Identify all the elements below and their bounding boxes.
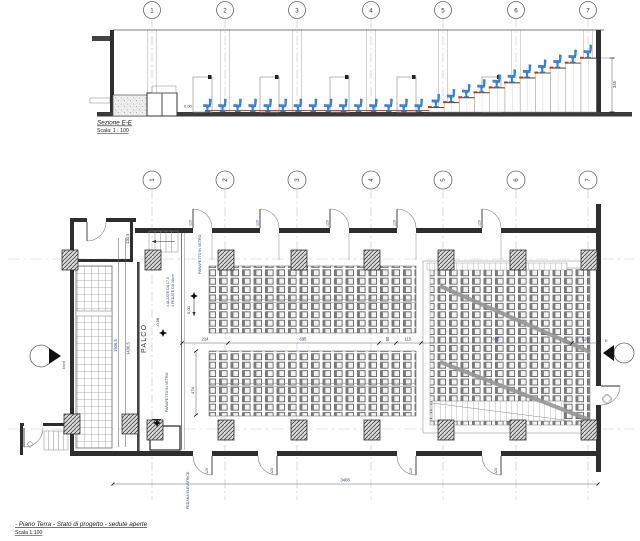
grid-bubble-number: 5 — [441, 7, 445, 14]
section-view: 0.00 345 1234567 Sezione E-E Scala: 1 : … — [90, 2, 632, 135]
plan-grid-bubbles: 1234567 — [143, 171, 597, 189]
stage-label: PALCO — [141, 324, 148, 353]
plan-right-wall-stub-top — [596, 204, 601, 228]
note-parapet-top: PARAPETTO IN VETRO — [198, 234, 202, 274]
door-width-label: 120 — [393, 220, 397, 226]
grid-bubble-number: 3 — [294, 178, 301, 182]
door-swing-arc — [258, 456, 277, 475]
door-swing-arc — [193, 456, 212, 475]
grid-bubble-number: 4 — [369, 7, 373, 14]
drawing-svg: 0.00 345 1234567 Sezione E-E Scala: 1 : … — [0, 0, 640, 541]
column-symbol — [438, 250, 454, 270]
north-arrow-icon — [49, 348, 61, 364]
aisle-dim-text: 80 — [385, 336, 390, 341]
stage-dim-text-3: 1436,5 — [126, 342, 131, 355]
grid-bubble-number: 4 — [368, 178, 375, 182]
seat-icon — [385, 99, 393, 112]
section-height-dim-text: 345 — [612, 80, 617, 88]
door-width-label: 120 — [326, 220, 330, 226]
column-symbol — [291, 420, 307, 440]
seat-icon — [462, 84, 470, 97]
aisle-dim-text: 695 — [300, 337, 308, 342]
seat-icon — [569, 50, 577, 63]
door-swing-arc — [193, 209, 212, 228]
column-symbol — [291, 250, 307, 270]
note-steps-1: 4 ALZATE DA 17,5 — [166, 277, 170, 307]
door-width-label: 120 — [270, 468, 274, 474]
level-arrow-head — [192, 312, 195, 316]
column-symbol — [510, 420, 526, 440]
corner-room-left-wall — [20, 423, 23, 455]
aisle-dim-text: 120 — [582, 337, 590, 342]
wall-segment — [70, 451, 193, 456]
door-gap — [596, 386, 601, 405]
aisle-dim-text: 695 — [493, 337, 501, 342]
plan-scale: Scala 1:100 — [15, 530, 43, 536]
column-symbol — [145, 250, 161, 270]
door-width-label: 120 — [478, 220, 482, 226]
grid-bubble-number: 6 — [514, 7, 518, 14]
door-swing-arc — [482, 456, 501, 475]
seat-icon — [554, 55, 562, 68]
stage-platform-tiles — [76, 266, 112, 448]
wall-segment — [212, 228, 260, 233]
note-lift-platform: PEDANA ELEVATRICE — [186, 471, 190, 509]
note-steps-2: 4 PEDATE DA 30cm — [171, 274, 175, 307]
door-tag-circle — [603, 395, 612, 404]
architectural-drawing-sheet: 0.00 345 1234567 Sezione E-E Scala: 1 : … — [0, 0, 640, 541]
overall-dim-text: 3408 — [340, 478, 350, 483]
door-width-label: 120 — [205, 468, 209, 474]
plan-bottom-wall — [70, 451, 601, 456]
column-symbol — [438, 420, 454, 440]
section-title: Sezione E-E — [97, 120, 133, 127]
level-hall-text: 0,00 — [186, 305, 191, 314]
grid-bubble-number: 7 — [586, 7, 590, 14]
grid-bubble-number: 5 — [440, 178, 447, 182]
section-right-wall — [596, 30, 601, 114]
column-symbol — [364, 250, 380, 270]
stair-arrow-head — [152, 240, 156, 243]
seat-icon — [279, 99, 287, 112]
wall-segment — [416, 228, 482, 233]
wall-segment — [501, 228, 596, 233]
grid-bubble-number: 3 — [295, 7, 299, 14]
column-symbol — [62, 250, 78, 270]
grid-bubble-number: 7 — [585, 178, 592, 182]
stage-dim-text-1: 130,5 — [125, 233, 130, 244]
door-width-label: 120 — [409, 468, 413, 474]
door-swing-arc — [397, 209, 416, 228]
door-head-mark — [208, 75, 212, 79]
stage-pit — [113, 95, 147, 116]
grid-bubble-number: 1 — [149, 178, 156, 182]
door-swing-arc — [397, 456, 416, 475]
door-swing-arc — [87, 222, 106, 241]
grid-bubble-number: 2 — [223, 7, 227, 14]
section-floor-level-text: 0.00 — [184, 104, 193, 109]
grid-bubble-number: 6 — [513, 178, 520, 182]
door-width-label: 120 — [494, 468, 498, 474]
seat-icon — [523, 65, 531, 78]
section-scale: Scala: 1 : 100 — [97, 128, 129, 134]
door-swing-arc — [260, 209, 279, 228]
aisle-dim-text: 214 — [202, 337, 210, 342]
section-marker-circle — [614, 343, 634, 363]
level-marker-stage — [159, 329, 167, 337]
note-parapet-bottom: PARAPETTO IN VETRO — [165, 372, 169, 412]
column-symbol — [64, 414, 80, 434]
column-symbol — [218, 420, 234, 440]
door-head-mark — [275, 75, 279, 79]
plan-top-wall — [135, 228, 596, 233]
plan-title: - Piano Terra - Stato di progetto - sedu… — [15, 521, 148, 528]
level-stage-text: -0,98 — [155, 317, 160, 327]
section-marker-arrow-icon — [603, 345, 614, 361]
wall-segment — [416, 451, 482, 456]
door-head-mark — [345, 75, 349, 79]
column-symbol — [581, 250, 597, 270]
stage-platform-break — [76, 311, 112, 316]
door-head-mark — [412, 75, 416, 79]
wall-segment — [501, 451, 601, 456]
seat-icon — [309, 99, 317, 112]
room-right-wall — [130, 218, 133, 262]
aisle-dim-text: 115 — [405, 337, 412, 342]
seat-icon — [234, 99, 242, 112]
room-bottom-wall — [73, 259, 133, 262]
column-symbol — [510, 250, 526, 270]
seat-icon — [354, 99, 362, 112]
section-grid-bubbles: 1234567 — [144, 2, 597, 19]
north-label: Nord — [62, 361, 66, 369]
section-flat-seats — [203, 99, 422, 112]
door-gap — [24, 423, 43, 426]
wall-segment — [135, 228, 193, 233]
seat-icon — [447, 89, 455, 102]
section-marker-label: E — [605, 338, 608, 343]
level-marker-hall — [190, 292, 198, 300]
wall-segment — [277, 451, 397, 456]
seat-icon — [249, 99, 257, 112]
seat-depth-dim-text: 474 — [191, 386, 196, 394]
column-symbol — [364, 420, 380, 440]
plan-view: 130,5 1506,5 1436,5 120120120120120120 — [8, 171, 634, 536]
door-gap — [87, 216, 106, 222]
door-width-label: 120 — [189, 220, 193, 226]
column-symbol — [581, 420, 597, 440]
wall-segment — [349, 228, 397, 233]
column-symbol — [122, 414, 138, 434]
door-swing-arc — [482, 209, 501, 228]
door-width-label: 120 — [256, 220, 260, 226]
column-symbol — [218, 250, 234, 270]
section-left-ledge — [92, 36, 113, 41]
door-swing-arc — [330, 209, 349, 228]
wall-segment — [212, 451, 258, 456]
seat-icon — [538, 60, 546, 73]
grid-bubble-number: 1 — [150, 7, 154, 14]
wall-segment — [279, 228, 330, 233]
section-left-pipe — [90, 98, 110, 103]
north-marker-circle — [30, 345, 52, 367]
grid-bubble-number: 2 — [222, 178, 229, 182]
stage-dim-text-2: 1506,5 — [113, 339, 118, 352]
